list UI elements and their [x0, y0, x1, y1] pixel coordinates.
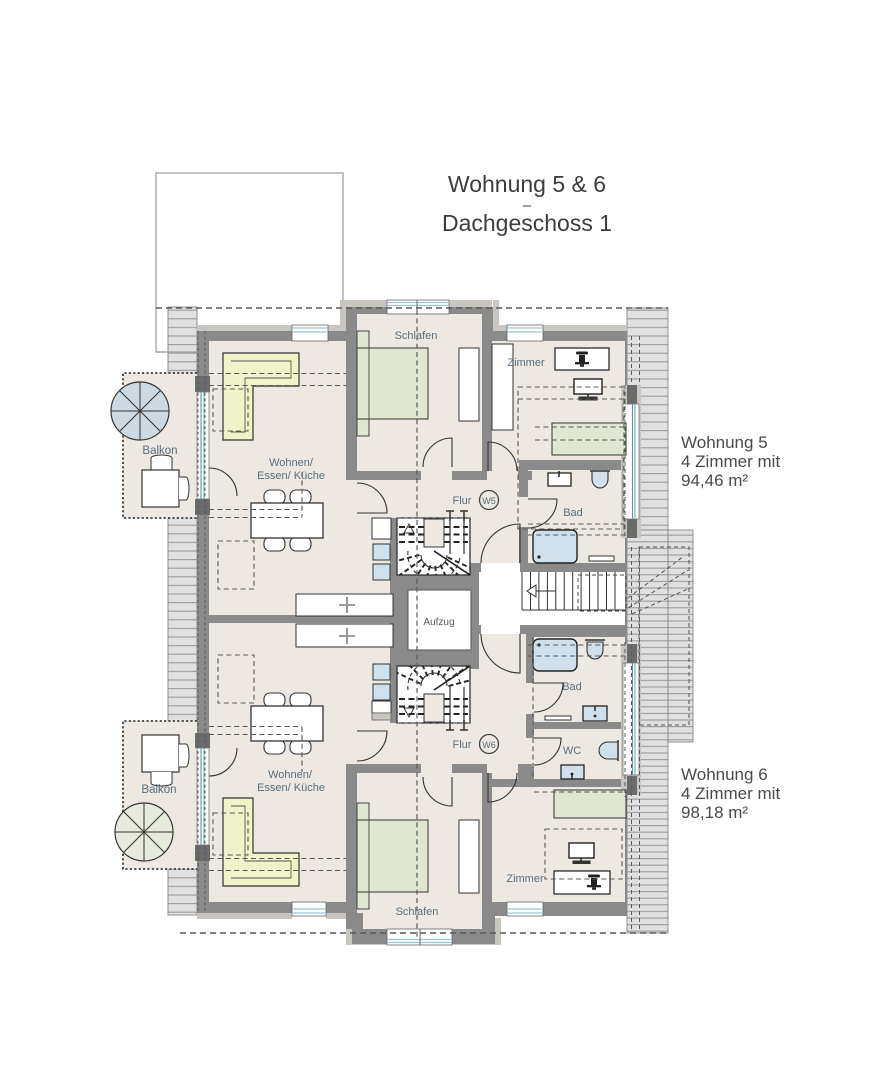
svg-text:WC: WC: [563, 745, 581, 757]
svg-text:Schlafen: Schlafen: [396, 906, 439, 918]
svg-text:Zimmer: Zimmer: [506, 873, 544, 885]
svg-text:Balkon: Balkon: [141, 784, 176, 796]
svg-text:Aufzug: Aufzug: [423, 617, 454, 628]
svg-text:Wohnung 5: Wohnung 5: [681, 433, 768, 452]
svg-text:Essen/ Küche: Essen/ Küche: [257, 782, 325, 794]
svg-text:4 Zimmer mit: 4 Zimmer mit: [681, 784, 780, 803]
svg-text:Flur: Flur: [453, 495, 472, 507]
svg-text:Balkon: Balkon: [142, 445, 177, 457]
svg-text:Wohnung 5 & 6: Wohnung 5 & 6: [448, 171, 606, 197]
svg-text:Schlafen: Schlafen: [395, 330, 438, 342]
svg-text:94,46 m²: 94,46 m²: [681, 471, 748, 490]
svg-text:Wohnen/: Wohnen/: [268, 769, 313, 781]
svg-text:W6: W6: [482, 740, 496, 750]
svg-text:Wohnen/: Wohnen/: [269, 457, 314, 469]
svg-text:W5: W5: [482, 496, 496, 506]
svg-text:Bad: Bad: [562, 681, 582, 693]
svg-text:Wohnung 6: Wohnung 6: [681, 765, 768, 784]
svg-text:Flur: Flur: [453, 739, 472, 751]
svg-text:98,18 m²: 98,18 m²: [681, 803, 748, 822]
svg-text:Essen/ Küche: Essen/ Küche: [257, 470, 325, 482]
svg-text:Dachgeschoss 1: Dachgeschoss 1: [442, 210, 612, 236]
svg-text:Zimmer: Zimmer: [507, 357, 545, 369]
svg-text:4 Zimmer mit: 4 Zimmer mit: [681, 452, 780, 471]
svg-text:Bad: Bad: [563, 507, 583, 519]
